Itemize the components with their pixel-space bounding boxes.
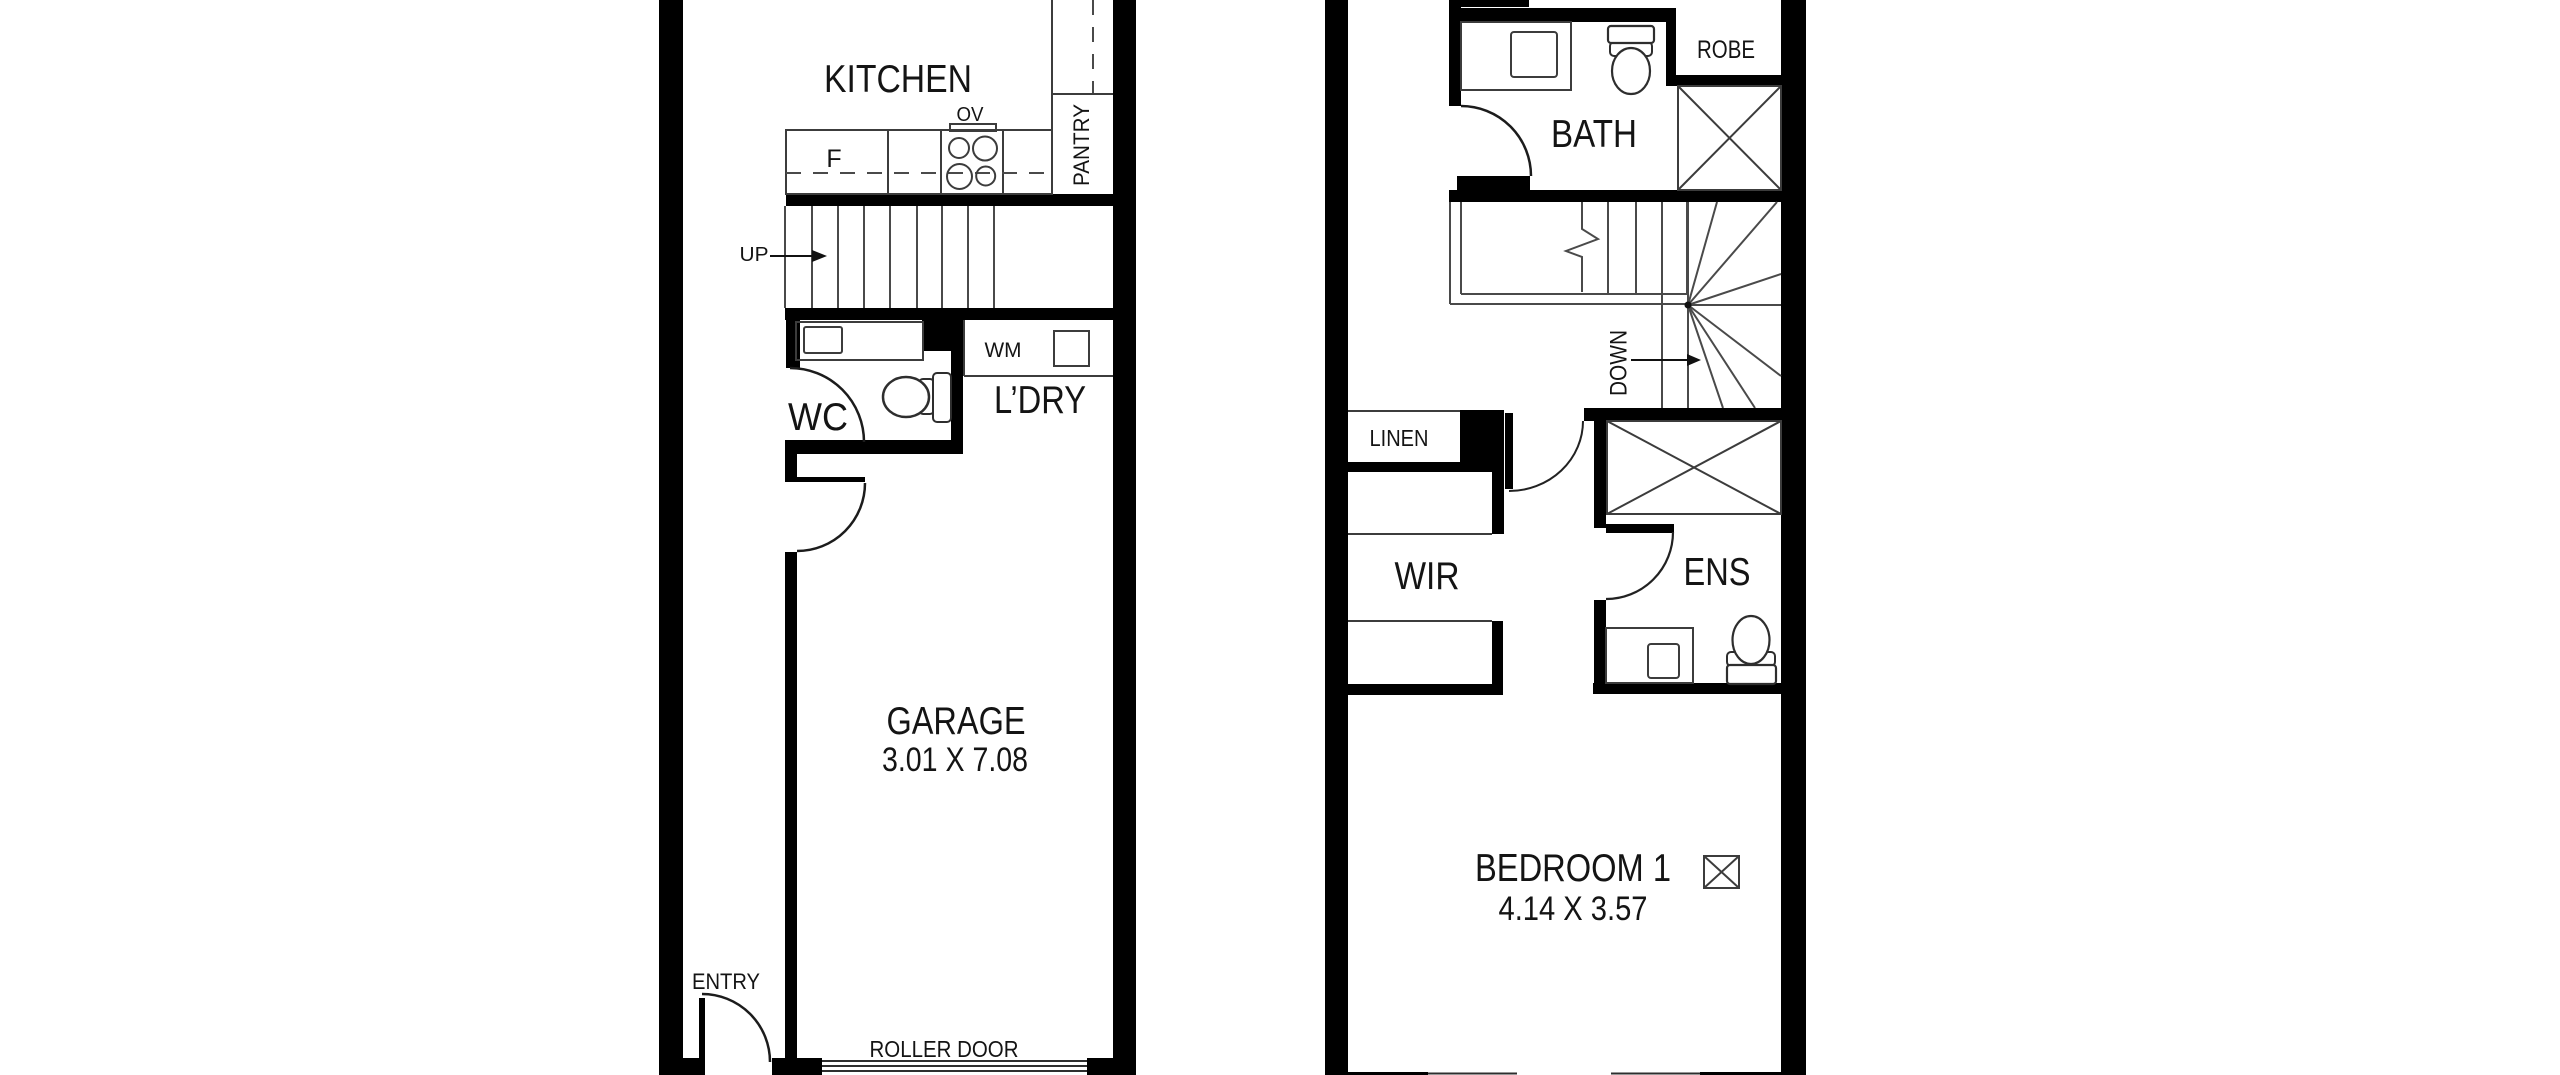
svg-text:WM: WM (985, 339, 1022, 362)
svg-text:BATH: BATH (1551, 113, 1637, 156)
svg-text:BEDROOM 1: BEDROOM 1 (1475, 847, 1671, 890)
svg-text:ENS: ENS (1684, 551, 1751, 594)
svg-text:PANTRY: PANTRY (1069, 104, 1094, 186)
svg-text:GARAGE: GARAGE (887, 700, 1026, 743)
svg-text:F: F (826, 145, 841, 173)
svg-text:4.14 X 3.57: 4.14 X 3.57 (1499, 890, 1648, 928)
svg-text:ENTRY: ENTRY (692, 969, 760, 994)
svg-text:DOWN: DOWN (1605, 330, 1632, 396)
svg-text:L’DRY: L’DRY (994, 379, 1086, 422)
svg-text:KITCHEN: KITCHEN (824, 58, 972, 101)
svg-text:UP: UP (740, 244, 769, 266)
svg-text:WC: WC (788, 396, 848, 439)
svg-text:3.01 X 7.08: 3.01 X 7.08 (882, 741, 1028, 779)
svg-text:ROLLER DOOR: ROLLER DOOR (870, 1036, 1019, 1062)
svg-text:ROBE: ROBE (1697, 36, 1755, 64)
svg-text:WIR: WIR (1395, 555, 1460, 598)
svg-text:LINEN: LINEN (1370, 425, 1429, 451)
svg-text:OV: OV (957, 104, 985, 126)
